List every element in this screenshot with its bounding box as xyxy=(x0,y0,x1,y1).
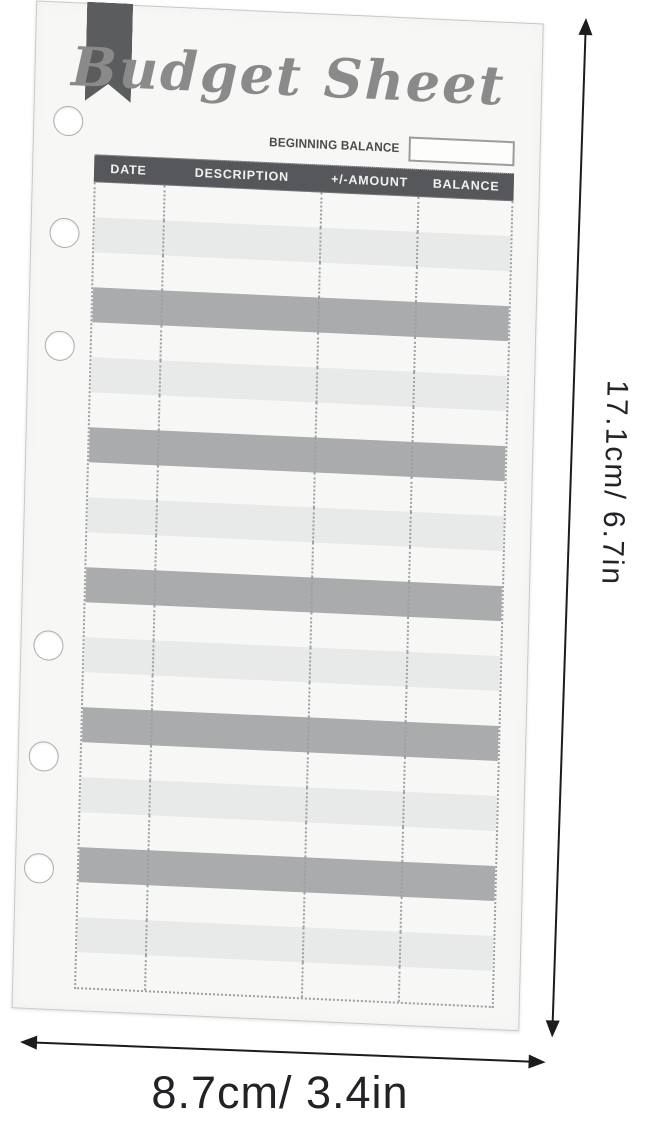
arrow-line xyxy=(33,1041,533,1062)
product-photo: Budget Sheet BEGINNING BALANCE DATE DESC… xyxy=(0,0,650,1127)
table-cell xyxy=(79,847,148,885)
column-header-balance: BALANCE xyxy=(418,170,514,200)
table-cell xyxy=(85,602,154,640)
table-cell xyxy=(415,267,510,306)
table-cell xyxy=(301,927,399,966)
binder-hole xyxy=(33,630,64,661)
binder-hole xyxy=(53,105,84,136)
table-cell xyxy=(412,372,507,411)
table-cell xyxy=(399,897,494,936)
table-cell xyxy=(84,637,153,675)
table-cell xyxy=(78,882,147,920)
table-cell xyxy=(313,472,411,511)
table-cell xyxy=(402,792,497,831)
table-cell xyxy=(305,787,403,826)
table-cell xyxy=(309,612,407,651)
budget-sheet-page: Budget Sheet BEGINNING BALANCE DATE DESC… xyxy=(12,0,544,1031)
table-cell xyxy=(311,542,409,581)
table-cell xyxy=(304,822,402,861)
table-cell xyxy=(315,367,413,406)
table-cell xyxy=(76,952,145,990)
binder-hole xyxy=(49,217,80,248)
table-cell xyxy=(308,647,406,686)
table-cell xyxy=(319,193,417,232)
table-cell xyxy=(410,442,505,481)
column-header-date: DATE xyxy=(94,155,163,184)
width-dimension-label: 8.7cm/ 3.4in xyxy=(110,1068,450,1118)
table-cell xyxy=(306,752,404,791)
width-dimension-arrow xyxy=(20,1033,546,1071)
table-cell xyxy=(405,652,500,691)
table-cell xyxy=(314,402,412,441)
table-cell xyxy=(416,197,511,236)
page-title: Budget Sheet xyxy=(35,24,543,129)
beginning-balance-label: BEGINNING BALANCE xyxy=(269,135,400,155)
table-cell xyxy=(77,917,146,955)
table-cell xyxy=(317,297,415,336)
table-cell xyxy=(409,477,504,516)
table-cell xyxy=(88,462,157,500)
table-cell xyxy=(89,427,158,465)
table-cell xyxy=(316,332,414,371)
table-body xyxy=(74,182,513,1008)
table-cell xyxy=(91,357,160,395)
table-cell xyxy=(95,182,164,220)
table-cell xyxy=(86,532,155,570)
table-cell xyxy=(80,777,149,815)
table-cell xyxy=(415,232,510,271)
table-cell xyxy=(90,392,159,430)
table-cell xyxy=(313,437,411,476)
table-cell xyxy=(302,892,400,931)
table-cell xyxy=(413,337,508,376)
table-cell xyxy=(307,717,405,756)
table-cell xyxy=(303,857,401,896)
table-cell xyxy=(82,707,151,745)
table-cell xyxy=(404,687,499,726)
table-cell xyxy=(414,302,509,341)
table-cell xyxy=(401,827,496,866)
binder-hole xyxy=(44,330,75,361)
table-cell xyxy=(144,955,301,997)
table-cell xyxy=(93,252,162,290)
table-cell xyxy=(80,812,149,850)
table-cell xyxy=(319,228,417,267)
table-cell xyxy=(407,582,502,621)
beginning-balance-box xyxy=(408,136,515,166)
arrow-right-icon xyxy=(528,1055,546,1070)
binder-hole xyxy=(24,853,55,884)
height-dimension-arrow xyxy=(543,18,595,1038)
table-cell xyxy=(403,722,498,761)
table-cell xyxy=(307,682,405,721)
table-cell xyxy=(400,862,495,901)
table-cell xyxy=(312,507,410,546)
table-cell xyxy=(408,547,503,586)
table-cell xyxy=(310,577,408,616)
height-dimension-label: 17.1cm/ 6.7in xyxy=(594,380,633,587)
table-cell xyxy=(83,672,152,710)
table-cell xyxy=(406,617,501,656)
binder-hole xyxy=(28,741,59,772)
table-cell xyxy=(301,962,399,1001)
table-cell xyxy=(92,322,161,360)
table-cell xyxy=(403,757,498,796)
arrow-down-icon xyxy=(545,1020,560,1037)
column-header-amount: +/-AMOUNT xyxy=(320,166,418,196)
table-cell xyxy=(86,567,155,605)
table-cell xyxy=(94,217,163,255)
table-cell xyxy=(81,742,150,780)
budget-table: DATE DESCRIPTION +/-AMOUNT BALANCE xyxy=(74,154,514,1008)
table-cell xyxy=(397,967,492,1006)
table-cell xyxy=(318,262,416,301)
table-cell xyxy=(92,287,161,325)
table-cell xyxy=(87,497,156,535)
arrow-line xyxy=(552,31,587,1025)
table-cell xyxy=(409,512,504,551)
table-cell xyxy=(398,932,493,971)
table-cell xyxy=(411,407,506,446)
